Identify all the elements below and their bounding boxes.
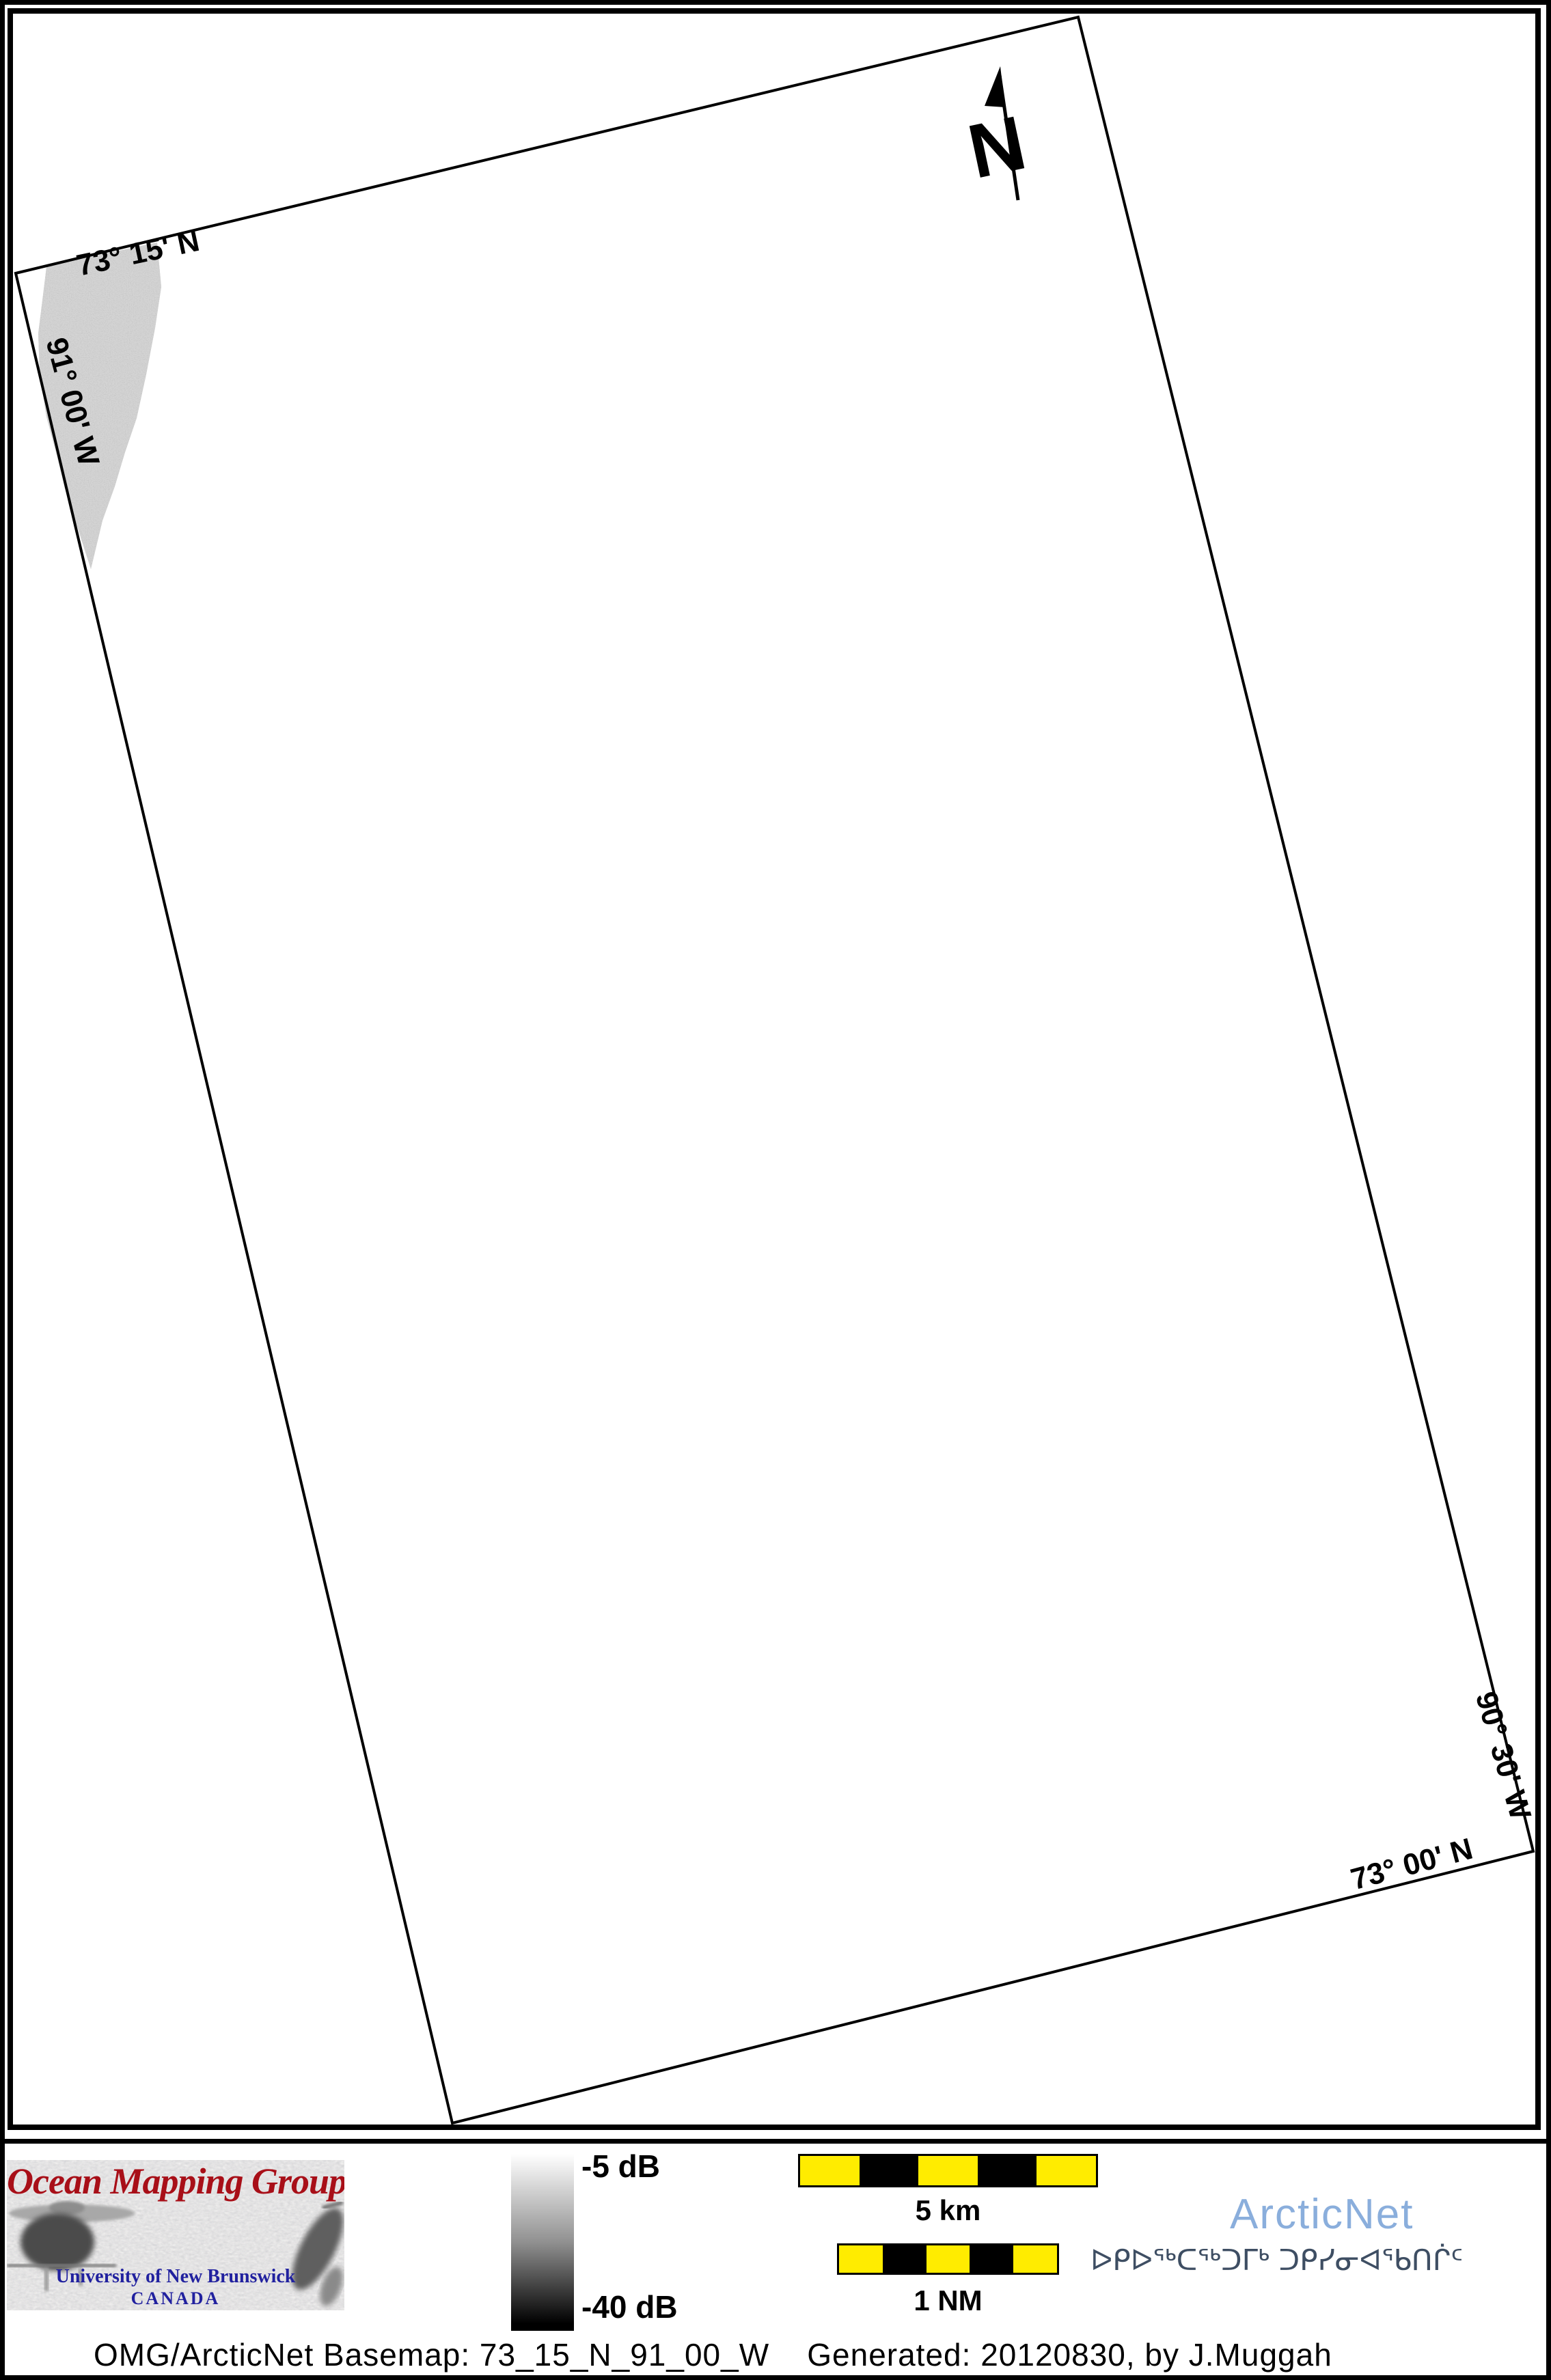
arcticnet-logo-text: ArcticNet <box>1230 2190 1414 2239</box>
backscatter-colorbar <box>511 2154 574 2331</box>
scalebar-segment <box>978 2156 1037 2185</box>
scalebar-segment <box>839 2245 883 2273</box>
scalebar-km <box>798 2154 1098 2187</box>
map-canvas: N 73° 15' N 91° 00' W 90° 30' W 73° 00' … <box>0 0 1551 2380</box>
page-border <box>0 0 5 2380</box>
basemap-page: N 73° 15' N 91° 00' W 90° 30' W 73° 00' … <box>0 0 1551 2380</box>
scalebar-segment <box>800 2156 860 2185</box>
omg-university: University of New Brunswick <box>7 2266 344 2288</box>
graticule-boundary <box>16 17 1533 2123</box>
scalebar-segment <box>970 2245 1013 2273</box>
omg-title: Ocean Mapping Group <box>7 2160 344 2202</box>
scalebar-segment <box>1013 2245 1057 2273</box>
page-border <box>1546 0 1551 2380</box>
scalebar-segment <box>1037 2156 1096 2185</box>
map-frame <box>10 11 1538 2127</box>
scalebar-km-label: 5 km <box>798 2194 1098 2227</box>
scalebar-segment <box>927 2245 970 2273</box>
basemap-caption: OMG/ArcticNet Basemap: 73_15_N_91_00_W G… <box>94 2336 1332 2373</box>
colorbar-bottom-label: -40 dB <box>581 2288 678 2325</box>
north-arrow: N <box>961 66 1032 200</box>
scalebar-segment <box>918 2156 978 2185</box>
colorbar-top-label: -5 dB <box>581 2148 660 2185</box>
page-border <box>0 0 1551 5</box>
scalebar-nm-label: 1 NM <box>837 2284 1059 2317</box>
legend-separator <box>5 2139 1546 2144</box>
omg-logo: Ocean Mapping Group University of New Br… <box>7 2160 344 2310</box>
north-arrow-label: N <box>961 100 1032 195</box>
omg-country: CANADA <box>7 2288 344 2309</box>
label-right-longitude: 90° 30' W <box>1469 1688 1537 1823</box>
scalebar-nm <box>837 2243 1059 2275</box>
page-border <box>0 2375 1551 2380</box>
label-bottom-latitude: 73° 00' N <box>1347 1832 1477 1896</box>
north-arrow-head <box>985 66 1005 107</box>
scalebar-segment <box>883 2245 927 2273</box>
scalebar-segment <box>860 2156 919 2185</box>
arcticnet-inuktitut-text: ᐅᑭᐅᖅᑕᖅᑐᒥᒃ ᑐᑭᓯᓂᐊᖃᑎᒌᑦ <box>1090 2243 1463 2277</box>
